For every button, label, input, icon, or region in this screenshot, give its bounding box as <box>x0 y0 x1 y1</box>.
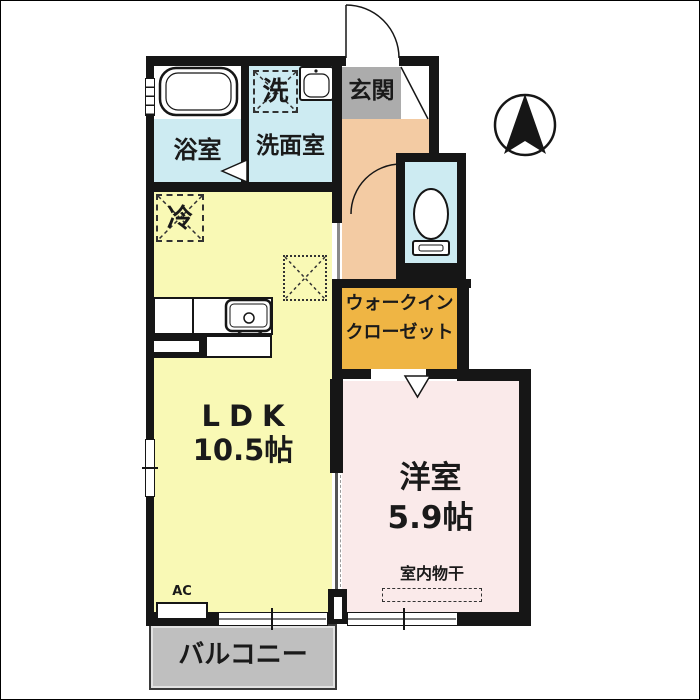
fridge-mark: 冷 <box>156 205 204 234</box>
kitchen-counter-return <box>205 335 272 358</box>
wall-segment <box>146 497 154 612</box>
indoor-drying-rail <box>382 588 482 602</box>
wall-segment <box>429 63 439 160</box>
ldk-western-sliding-door <box>335 473 338 589</box>
wall-segment <box>333 279 471 288</box>
wall-segment <box>426 369 457 379</box>
floorplan-image: 浴室 洗面室 洗 玄関 冷 LDK 10.5帖 ウォークイン クローゼット 洋室… <box>0 0 700 700</box>
bath-label: 浴室 <box>154 137 241 163</box>
window-tick <box>403 608 405 630</box>
room-bath <box>154 64 241 182</box>
hall-ldk-doorway <box>337 223 340 279</box>
half-wall-slot <box>154 341 199 352</box>
genkan-label: 玄関 <box>342 79 401 104</box>
wall-segment <box>396 153 466 162</box>
sliding-door-track <box>340 475 341 587</box>
wic-label-line2: クローゼット <box>342 323 457 343</box>
window-tick <box>142 467 158 469</box>
balcony-label: バルコニー <box>149 641 337 670</box>
hallway-lower <box>342 119 396 289</box>
wall-segment <box>333 369 371 379</box>
room-toilet <box>405 162 457 263</box>
genkan-step-line <box>401 67 428 119</box>
western-room-label: 洋室 <box>342 461 519 495</box>
indoor-drying-label: 室内物干 <box>362 565 502 583</box>
ac-unit <box>156 602 208 620</box>
wall-segment <box>458 612 531 626</box>
kitchen-half-wall <box>148 335 206 358</box>
wall-segment <box>332 63 342 223</box>
pillar-slot <box>334 597 342 619</box>
wall-segment <box>146 56 154 78</box>
wall-segment <box>332 279 342 379</box>
window-small-hatched <box>145 78 155 116</box>
window-tick <box>271 608 273 630</box>
washroom-label: 洗面室 <box>249 134 332 159</box>
wic-label-line1: ウォークイン <box>342 294 457 314</box>
dashed-x-box <box>283 255 327 301</box>
counter-divider <box>192 299 194 333</box>
bathtub-area <box>154 64 241 119</box>
western-room-size-label: 5.9帖 <box>342 501 519 535</box>
window-midline <box>348 618 456 620</box>
wall-segment <box>457 279 469 379</box>
wall-segment <box>146 182 342 192</box>
window-ldk-balcony <box>218 612 328 626</box>
north-arrow-icon <box>495 94 555 155</box>
wall-pillar <box>328 589 347 624</box>
ldk-size-label: 10.5帖 <box>154 435 332 467</box>
wall-segment <box>519 369 531 626</box>
kitchen-counter <box>153 297 273 335</box>
wall-segment <box>146 116 154 439</box>
wall-segment <box>241 63 249 182</box>
ac-label: AC <box>156 585 208 599</box>
laundry-mark: 洗 <box>253 78 298 107</box>
ldk-label: LDK <box>154 401 332 433</box>
entrance-door-swing <box>346 5 399 58</box>
window-western-sliding <box>347 612 458 626</box>
